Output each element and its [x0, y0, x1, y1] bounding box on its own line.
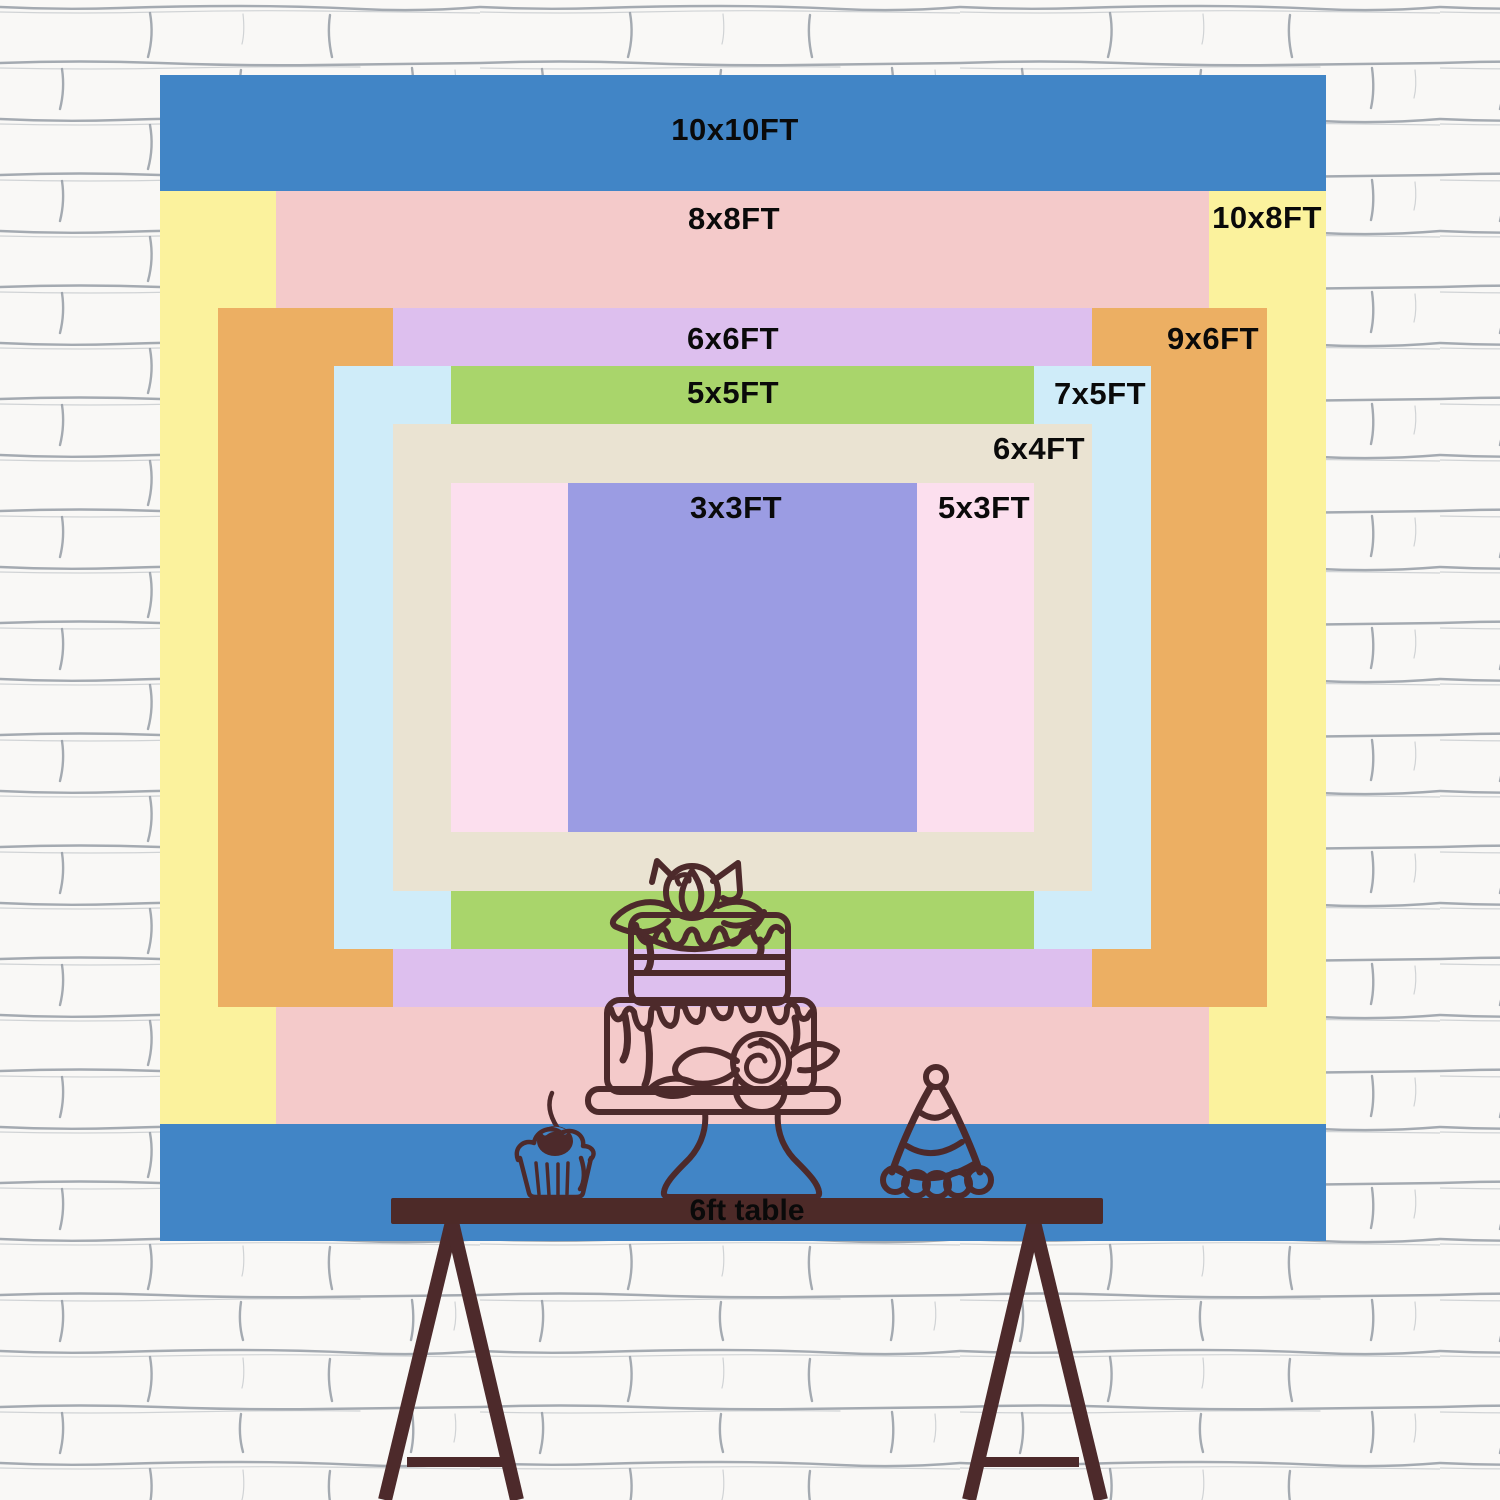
size-label-10x8ft: 10x8FT: [1212, 200, 1322, 236]
size-label-9x6ft: 9x6FT: [1167, 321, 1259, 357]
table-size-label: 6ft table: [689, 1194, 804, 1228]
size-label-10x10ft: 10x10FT: [671, 112, 799, 148]
size-label-3x3ft: 3x3FT: [690, 490, 782, 526]
size-label-6x6ft: 6x6FT: [687, 321, 779, 357]
size-label-8x8ft: 8x8FT: [688, 201, 780, 237]
size-label-7x5ft: 7x5FT: [1054, 376, 1146, 412]
size-chart-canvas: 10x10FT10x8FT8x8FT9x6FT6x6FT7x5FT5x5FT6x…: [0, 0, 1500, 1500]
backdrop-size-chart: 10x10FT10x8FT8x8FT9x6FT6x6FT7x5FT5x5FT6x…: [0, 0, 1500, 1500]
size-label-6x4ft: 6x4FT: [993, 431, 1085, 467]
backdrop-rect-3x3ft: [568, 483, 918, 833]
size-label-5x5ft: 5x5FT: [687, 375, 779, 411]
size-label-5x3ft: 5x3FT: [938, 490, 1030, 526]
